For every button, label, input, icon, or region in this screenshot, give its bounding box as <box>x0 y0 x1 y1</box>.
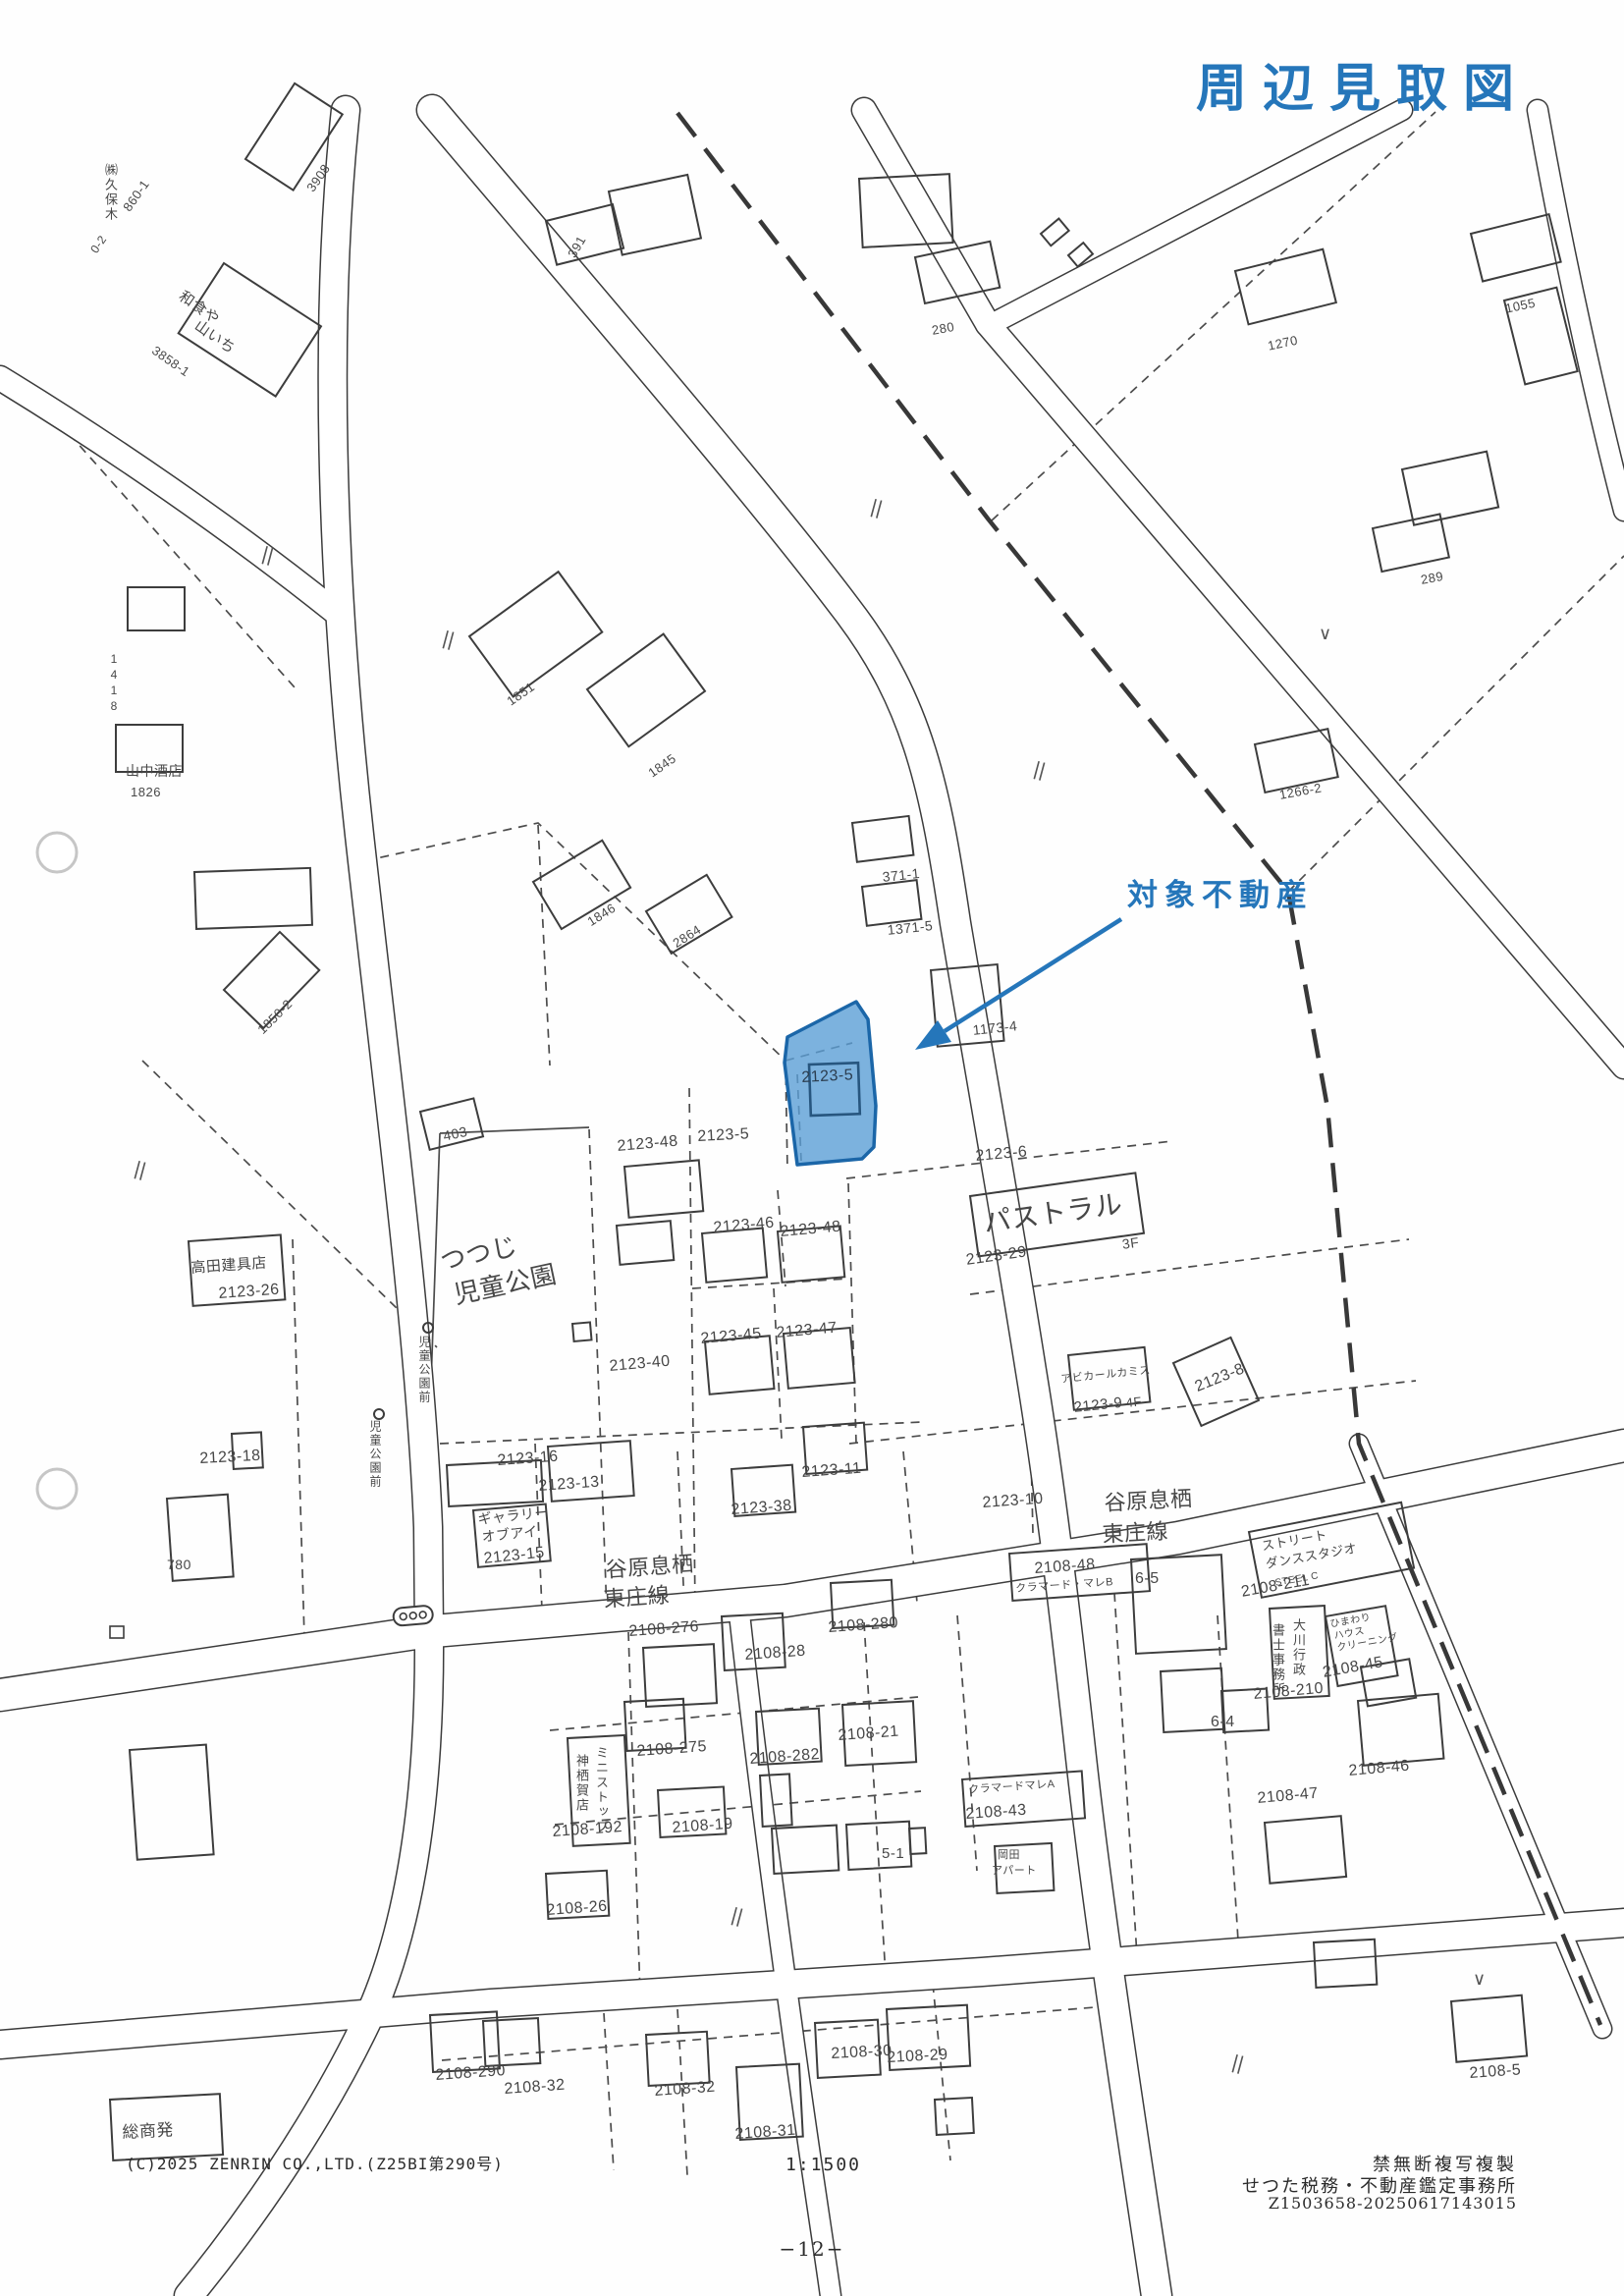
page-number: −12− <box>780 2237 845 2261</box>
punch-hole-icon <box>37 833 77 1508</box>
traffic-signal-icon <box>393 1606 433 1626</box>
map-page: 谷原息栖東庄線谷原息栖東庄線つつじ児童公園パストラル3F2123-2940321… <box>0 0 1624 2296</box>
map-linework <box>0 0 1624 2296</box>
bus-stop-icon <box>110 1323 433 1638</box>
serial-number-text: Z1503658-20250617143015 <box>1269 2194 1517 2213</box>
roads-outline <box>0 110 1624 2296</box>
copyright-text: (C)2025 ZENRIN CO.,LTD.(Z25BI第290号) <box>126 2151 504 2174</box>
parcel-solid-lines <box>422 1127 589 1632</box>
subject-parcel-highlight <box>785 1002 876 1165</box>
subject-property-annotation: 対象不動産 <box>1127 870 1314 914</box>
scale-text: 1:1500 <box>785 2155 861 2175</box>
page-title: 周辺見取図 <box>1196 47 1530 121</box>
